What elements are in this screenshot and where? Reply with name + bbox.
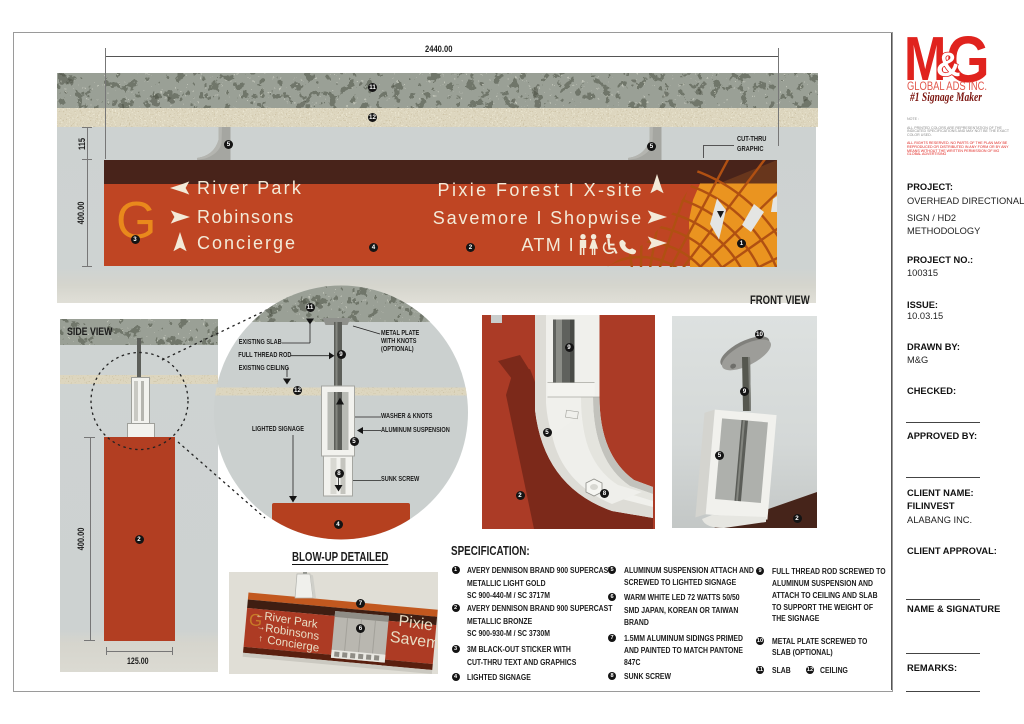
svg-text:→: → [256,621,266,632]
svg-text:#1 Signage Maker: #1 Signage Maker [909,89,982,104]
svg-text:←: ← [255,609,265,620]
svg-text:↑: ↑ [258,633,263,644]
